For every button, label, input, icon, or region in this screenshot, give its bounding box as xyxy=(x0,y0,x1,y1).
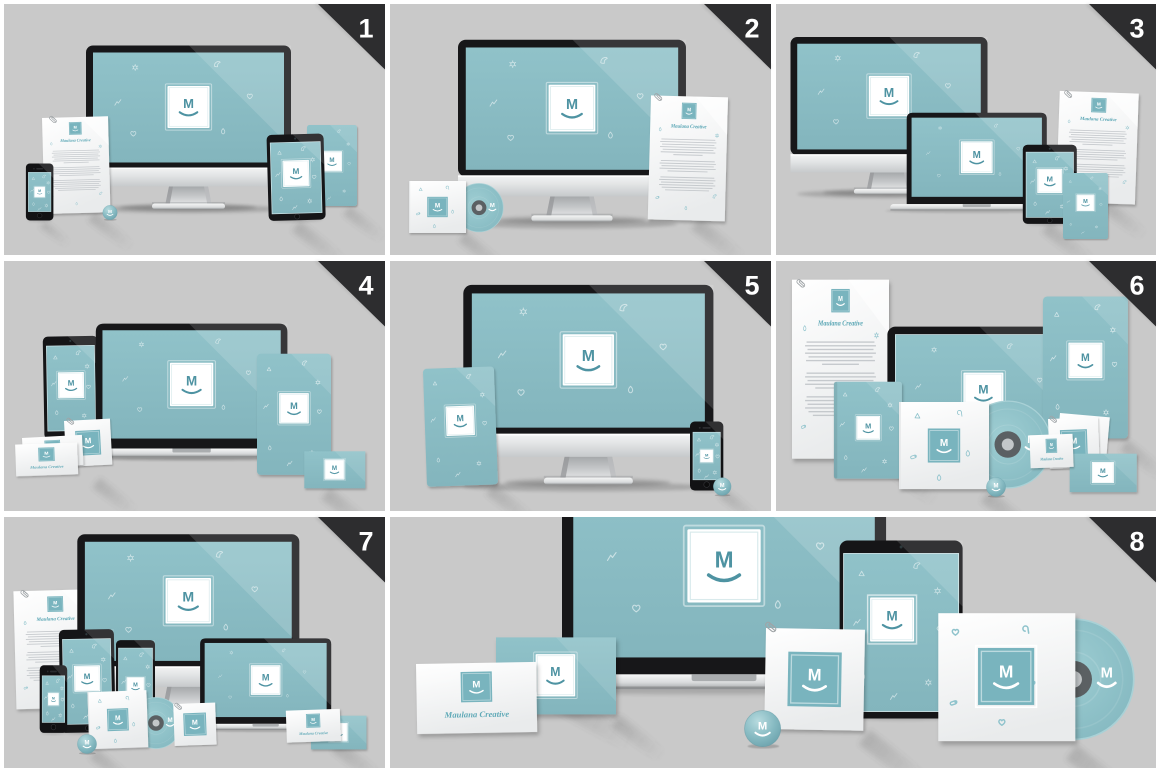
svg-text:3: 3 xyxy=(1129,14,1144,44)
svg-text:5: 5 xyxy=(744,271,759,301)
svg-text:2: 2 xyxy=(744,14,759,44)
svg-text:8: 8 xyxy=(1129,527,1144,557)
svg-text:4: 4 xyxy=(358,271,373,301)
svg-text:6: 6 xyxy=(1129,271,1144,301)
svg-text:1: 1 xyxy=(358,14,373,44)
svg-text:7: 7 xyxy=(358,527,373,557)
